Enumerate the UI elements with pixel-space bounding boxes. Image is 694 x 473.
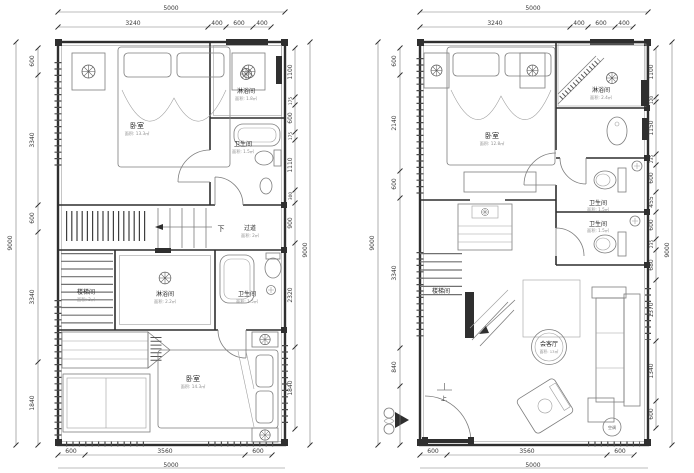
right-living-room: 空调 会客厅 面积: 13㎡ <box>516 280 640 436</box>
double-bed-icon <box>158 350 278 428</box>
dim-label: 600 <box>29 55 36 67</box>
dim-label: 120 <box>649 96 655 104</box>
dim-label: 900 <box>287 217 294 229</box>
dim-label: 1370 <box>648 302 655 317</box>
left-corridor: 下 过道 面积: 2㎡ <box>66 208 260 248</box>
ceiling-lamp-icon <box>260 334 270 344</box>
dim-label: 300 <box>288 192 294 200</box>
shower-head-icon <box>240 68 251 79</box>
room-label: 楼梯间 <box>432 287 450 295</box>
dim-label: 3340 <box>29 289 36 304</box>
room-label: 过道 <box>244 224 256 232</box>
dim-label: 3340 <box>391 265 398 280</box>
dim-label: 400 <box>573 20 585 27</box>
dim-label: 9000 <box>664 242 671 257</box>
dim-label: 600 <box>595 20 607 27</box>
dim-label: 600 <box>252 448 264 455</box>
floor-plan-screenshot: 卧室 面积: 13.3㎡ 淋浴间 面积: 1.8㎡ 卫生间 面积: 1.5㎡ 下 <box>0 0 694 473</box>
dim-label: 400 <box>211 20 223 27</box>
right-bedroom: 卧室 面积: 12.8㎡ <box>424 47 556 192</box>
dim-label: 600 <box>614 448 626 455</box>
door-arc <box>524 153 556 185</box>
room-area: 面积: 14.3㎡ <box>181 383 206 390</box>
dim-label: 600 <box>427 448 439 455</box>
dim-label: 600 <box>65 448 77 455</box>
left-stairwell: 楼梯间 面积: 3㎡ <box>77 253 96 327</box>
sofa-icon <box>592 287 640 406</box>
door-arc <box>215 177 243 205</box>
dim-label: 3560 <box>157 448 172 455</box>
dim-label: 9000 <box>369 235 376 250</box>
dim-label: 600 <box>233 20 245 27</box>
stair-treads <box>158 208 206 248</box>
right-stairwell: 楼梯间 上 <box>432 204 515 403</box>
left-bedroom-top: 卧室 面积: 13.3㎡ <box>72 47 265 182</box>
room-area: 面积: 3㎡ <box>77 296 96 303</box>
door-arc <box>218 330 246 358</box>
dim-label: 600 <box>29 212 36 224</box>
dim-label: 600 <box>648 219 655 231</box>
dim-label: 600 <box>648 172 655 184</box>
dim-label: 5000 <box>525 462 540 469</box>
dim-label: 3240 <box>125 20 140 27</box>
room-label: 卫生间 <box>238 290 256 298</box>
room-label: 卧室 <box>130 121 144 130</box>
dim-label: 455 <box>648 196 655 208</box>
entry-marker-icon <box>384 408 409 434</box>
toilet-icon <box>618 168 626 192</box>
dim-label: 5000 <box>163 5 178 12</box>
right-plan-dimensions: 5000 3240 400 600 400 9000 600 2140 600 … <box>369 5 675 469</box>
room-label: 卧室 <box>186 374 200 383</box>
towel-rack <box>276 56 282 84</box>
left-shower-mid: 淋浴间 面积: 2.2㎡ <box>120 248 211 325</box>
ceiling-lamp-icon <box>527 65 538 76</box>
dim-label: 1840 <box>287 380 294 395</box>
room-area: 面积: 1.5㎡ <box>587 227 610 234</box>
double-bed-icon <box>118 47 230 167</box>
dim-label: 9000 <box>302 242 309 257</box>
dim-label: 9000 <box>7 235 14 250</box>
ceiling-lamp-icon <box>431 65 442 76</box>
left-bath-top: 卫生间 面积: 1.5㎡ <box>215 124 281 205</box>
room-label: 会客厅 <box>540 340 558 348</box>
ceiling-lamp-icon <box>481 208 488 215</box>
room-area: 面积: 2㎡ <box>241 232 260 239</box>
armchair-icon <box>516 377 575 434</box>
dim-label: 3240 <box>487 20 502 27</box>
room-area: 面积: 1.5㎡ <box>236 298 259 305</box>
room-area: 面积: 12.8㎡ <box>480 140 505 147</box>
stair-direction-label: 下 <box>218 225 225 233</box>
dim-label: 600 <box>648 408 655 420</box>
dim-label: 680 <box>648 259 655 271</box>
door-arc <box>556 228 584 256</box>
dim-label: 175 <box>288 132 294 140</box>
room-label: 卧室 <box>485 131 499 140</box>
dim-label: 2320 <box>287 287 294 302</box>
floor-mat <box>523 280 580 337</box>
right-shower: 淋浴间 面积: 2.4㎡ <box>558 44 647 106</box>
dim-label: 1150 <box>648 120 655 135</box>
dim-label: 235 <box>649 155 655 163</box>
room-label: 卫生间 <box>589 220 607 228</box>
left-bath-mid: 卫生间 面积: 1.5㎡ <box>218 253 281 358</box>
right-sink-niche <box>607 117 647 145</box>
shower-head-icon <box>606 72 617 83</box>
room-area: 面积: 1.5㎡ <box>587 206 610 213</box>
dim-label: 1100 <box>287 64 294 79</box>
room-label: 淋浴间 <box>592 86 610 94</box>
stair-handrail <box>465 292 474 338</box>
wardrobe-icon <box>63 374 150 432</box>
toilet-icon <box>618 232 626 256</box>
dim-label: 1100 <box>648 64 655 79</box>
shower-head-icon <box>159 272 171 284</box>
dim-label: 600 <box>391 178 398 190</box>
ceiling-lamp-icon <box>260 430 270 440</box>
dim-label: 3560 <box>519 448 534 455</box>
dim-label: 5000 <box>163 462 178 469</box>
dim-label: 840 <box>391 361 398 373</box>
room-label: 楼梯间 <box>77 288 95 296</box>
towel-rack <box>641 80 647 106</box>
room-area: 面积: 13㎡ <box>540 349 559 354</box>
right-plan: 卧室 面积: 12.8㎡ 淋浴间 面积: 2.4㎡ 卫生间 面积: 1.5㎡ <box>369 5 675 469</box>
dim-label: 400 <box>618 20 630 27</box>
room-label: 淋浴间 <box>237 87 255 95</box>
room-area: 面积: 2.4㎡ <box>590 94 613 101</box>
room-label: 卫生间 <box>234 140 252 148</box>
lintel-dark <box>226 39 268 45</box>
door-arc <box>178 150 210 182</box>
room-area: 面积: 13.3㎡ <box>125 130 150 137</box>
stair-start-mark <box>437 383 452 390</box>
dim-label: 400 <box>256 20 268 27</box>
dim-label: 3340 <box>29 132 36 147</box>
room-label: 淋浴间 <box>156 290 174 298</box>
ac-label: 空调 <box>608 424 616 430</box>
dim-label: 1340 <box>648 363 655 378</box>
sink-icon <box>607 117 627 145</box>
toilet-icon <box>274 150 281 166</box>
dim-label: 1110 <box>287 157 294 172</box>
dim-label: 5000 <box>525 5 540 12</box>
room-label: 卫生间 <box>589 199 607 207</box>
ceiling-lamp-icon <box>82 65 95 78</box>
dim-label: 2140 <box>391 115 398 130</box>
left-plan-dimensions: 5000 3240 400 600 400 9000 600 3340 600 … <box>7 5 313 469</box>
left-plan: 卧室 面积: 13.3㎡ 淋浴间 面积: 1.8㎡ 卫生间 面积: 1.5㎡ 下 <box>7 5 313 469</box>
room-area: 面积: 1.5㎡ <box>232 148 255 155</box>
stair-break-lines <box>472 302 514 346</box>
room-area: 面积: 1.8㎡ <box>235 95 258 102</box>
dim-label: 1840 <box>29 395 36 410</box>
floor-plan-drawing: 卧室 面积: 13.3㎡ 淋浴间 面积: 1.8㎡ 卫生间 面积: 1.5㎡ 下 <box>0 0 694 473</box>
dim-label: 175 <box>288 97 294 105</box>
dim-label: 600 <box>391 55 398 67</box>
entry-door-arc <box>425 396 471 442</box>
right-bath-upper: 卫生间 面积: 1.5㎡ <box>560 158 642 213</box>
dim-label: 600 <box>287 112 294 124</box>
dim-label: 235 <box>649 240 655 248</box>
sink-icon <box>260 178 272 194</box>
door-arc <box>560 158 586 184</box>
right-entrance <box>384 396 474 445</box>
room-area: 面积: 2.2㎡ <box>154 298 177 305</box>
stair-treads <box>458 226 512 242</box>
threshold <box>427 439 469 443</box>
right-bath-lower: 卫生间 面积: 1.5㎡ <box>556 216 640 256</box>
double-bed-icon <box>447 47 555 165</box>
